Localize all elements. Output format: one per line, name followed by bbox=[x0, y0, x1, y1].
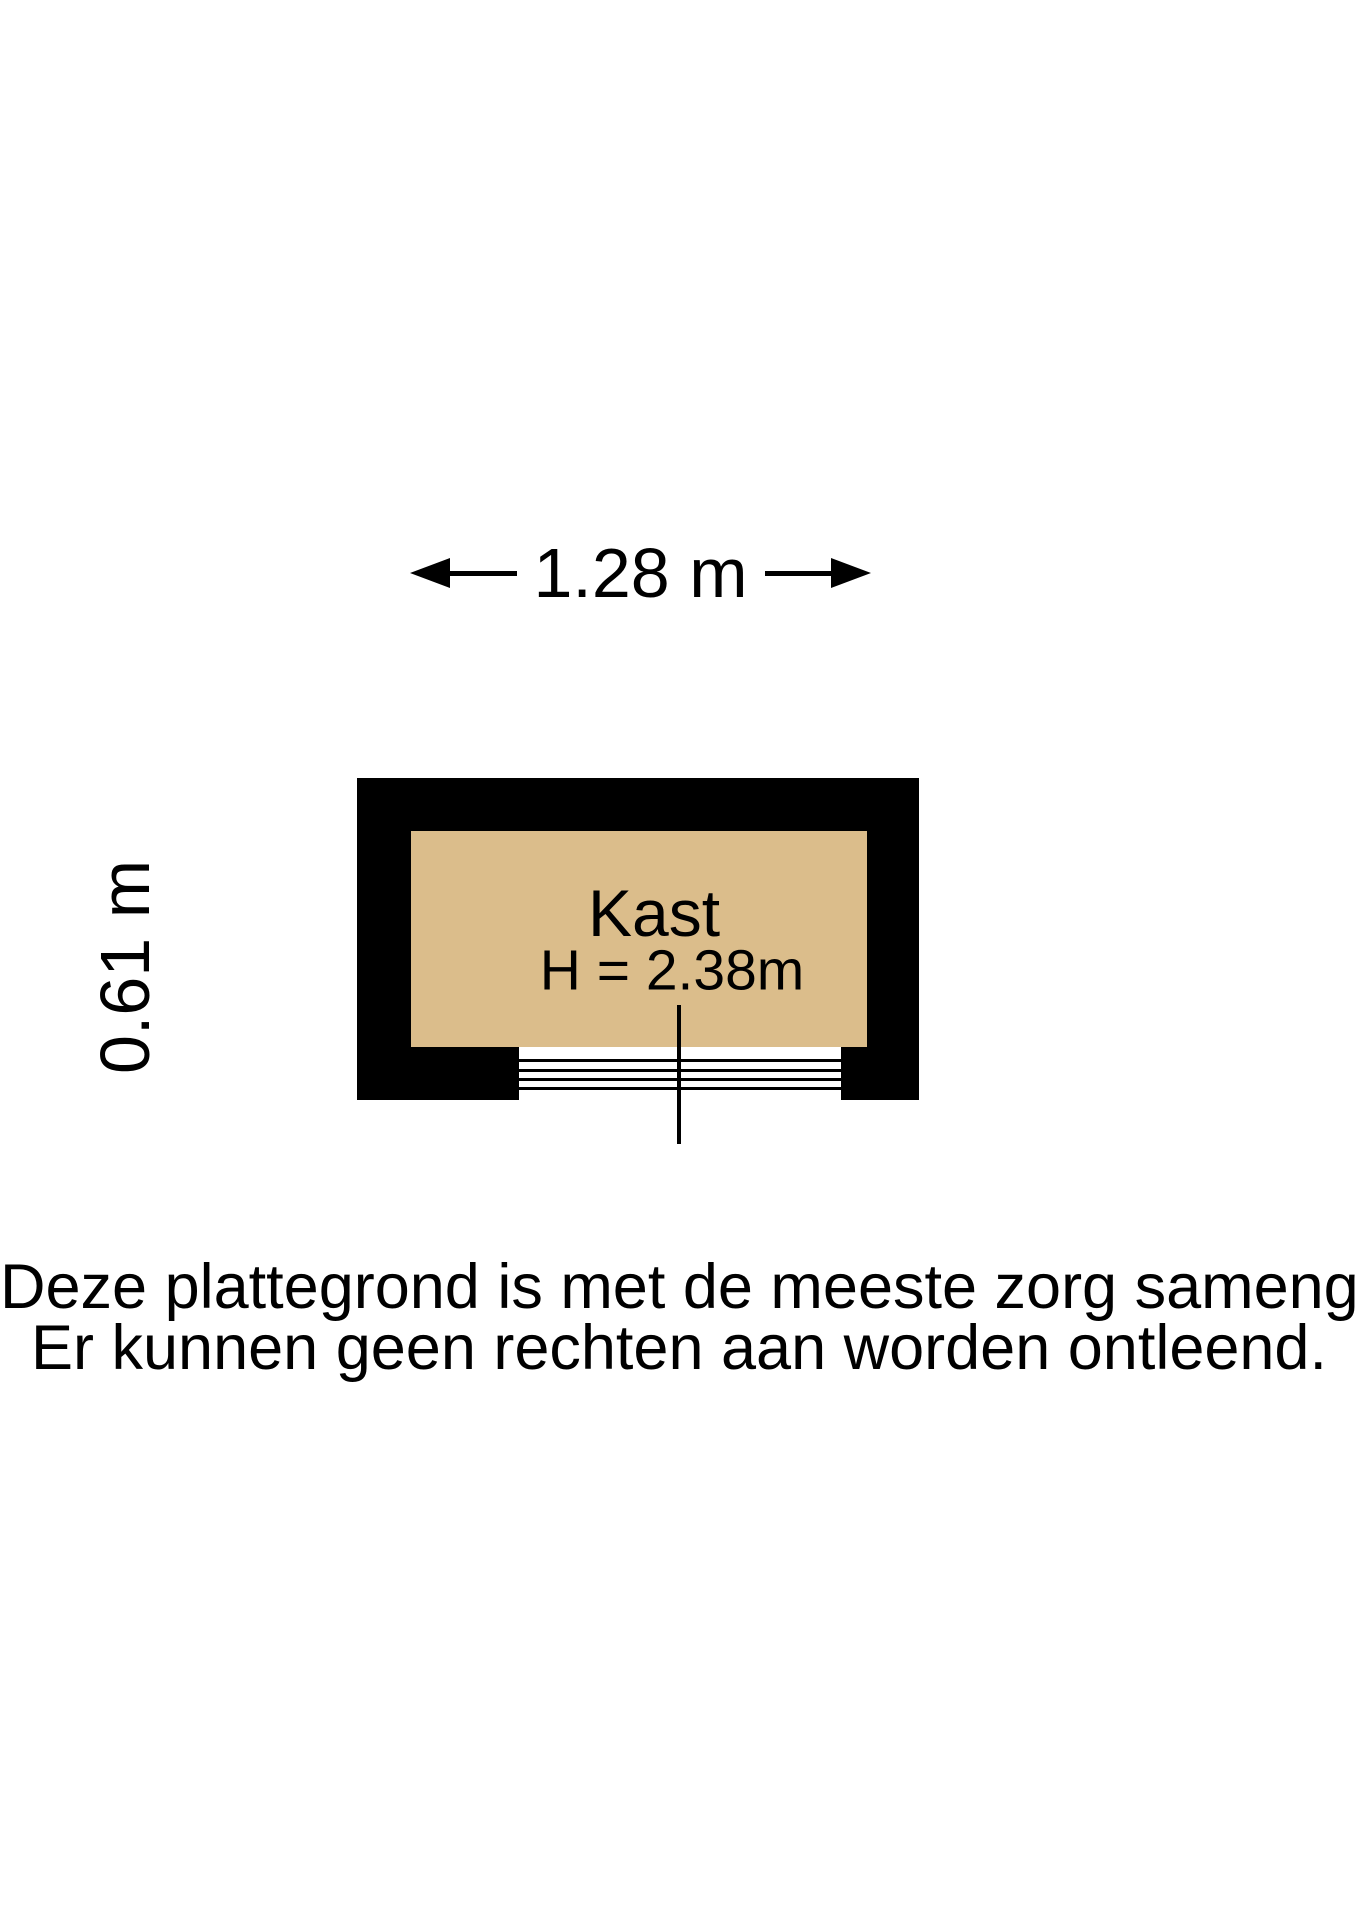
disclaimer: Deze plattegrond is met de meeste zorg s… bbox=[0, 1257, 1358, 1379]
dimension-line-left bbox=[450, 571, 517, 576]
wall-top bbox=[357, 778, 919, 831]
depth-dimension-label: 0.61 m bbox=[90, 860, 160, 1074]
room-label: Kast bbox=[588, 880, 720, 946]
dimension-arrow-right-icon bbox=[831, 558, 871, 588]
width-dimension: 1.28 m bbox=[410, 558, 871, 588]
floorplan-page: 1.28 m 0.61 m Kast H = 2.38m Deze platte… bbox=[0, 0, 1358, 1920]
wall-bottom-left bbox=[357, 1047, 519, 1100]
dimension-line-right bbox=[765, 571, 832, 576]
wall-bottom-right bbox=[841, 1047, 919, 1100]
disclaimer-line-1: Deze plattegrond is met de meeste zorg s… bbox=[0, 1257, 1358, 1318]
disclaimer-line-2: Er kunnen geen rechten aan worden ontlee… bbox=[0, 1318, 1358, 1379]
height-marker-line bbox=[677, 1005, 681, 1144]
width-dimension-label: 1.28 m bbox=[534, 558, 748, 588]
dimension-arrow-left-icon bbox=[410, 558, 450, 588]
room-height-label: H = 2.38m bbox=[540, 943, 805, 1000]
